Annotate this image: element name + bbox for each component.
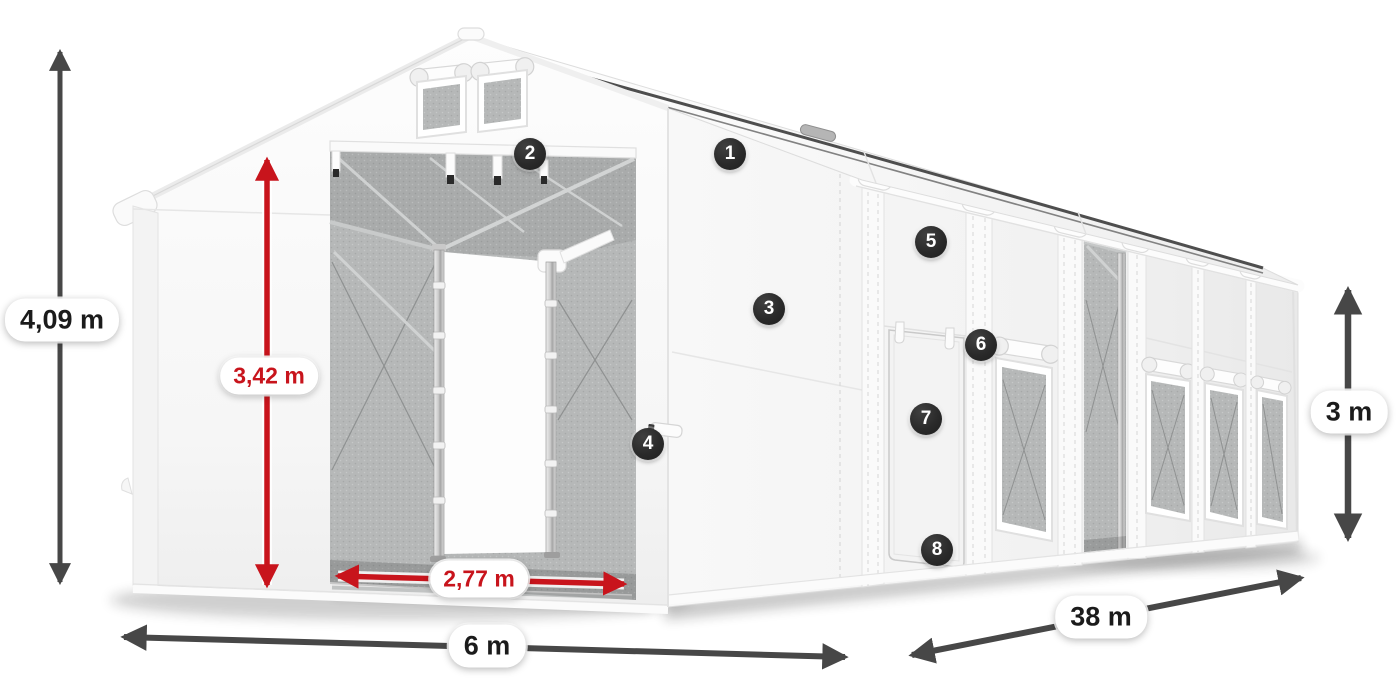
gable-vent-left: [409, 63, 474, 138]
dimension-label-total-height: 4,09 m: [5, 299, 119, 342]
side-window-1: [1141, 356, 1197, 521]
dimension-label-entrance-height: 3,42 m: [220, 358, 318, 395]
front-entrance-opening: [330, 141, 683, 600]
dimension-label-side-height: 3 m: [1311, 391, 1388, 434]
callout-badge-3[interactable]: 3: [753, 293, 785, 325]
side-window-3: [1250, 375, 1292, 529]
callout-badge-5[interactable]: 5: [915, 226, 947, 258]
side-open-doorway: [1084, 240, 1126, 561]
tent-dimension-diagram: 4,09 m 3,42 m 2,77 m 6 m 38 m 3 m 1 2 3 …: [0, 0, 1400, 700]
tent-illustration: [0, 0, 1400, 700]
gable-vent-right: [470, 57, 535, 132]
side-window-2: [1199, 366, 1249, 526]
callout-badge-7[interactable]: 7: [910, 403, 942, 435]
callout-badge-8[interactable]: 8: [921, 534, 953, 566]
side-door-panel: [889, 322, 964, 567]
callout-badge-1[interactable]: 1: [714, 138, 746, 170]
dimension-label-side-length: 38 m: [1055, 596, 1147, 639]
callout-badge-2[interactable]: 2: [514, 138, 546, 170]
callout-badge-6[interactable]: 6: [965, 329, 997, 361]
callout-badge-4[interactable]: 4: [632, 428, 664, 460]
dimension-label-front-width: 6 m: [449, 625, 526, 668]
dimension-label-entrance-width: 2,77 m: [430, 561, 528, 598]
